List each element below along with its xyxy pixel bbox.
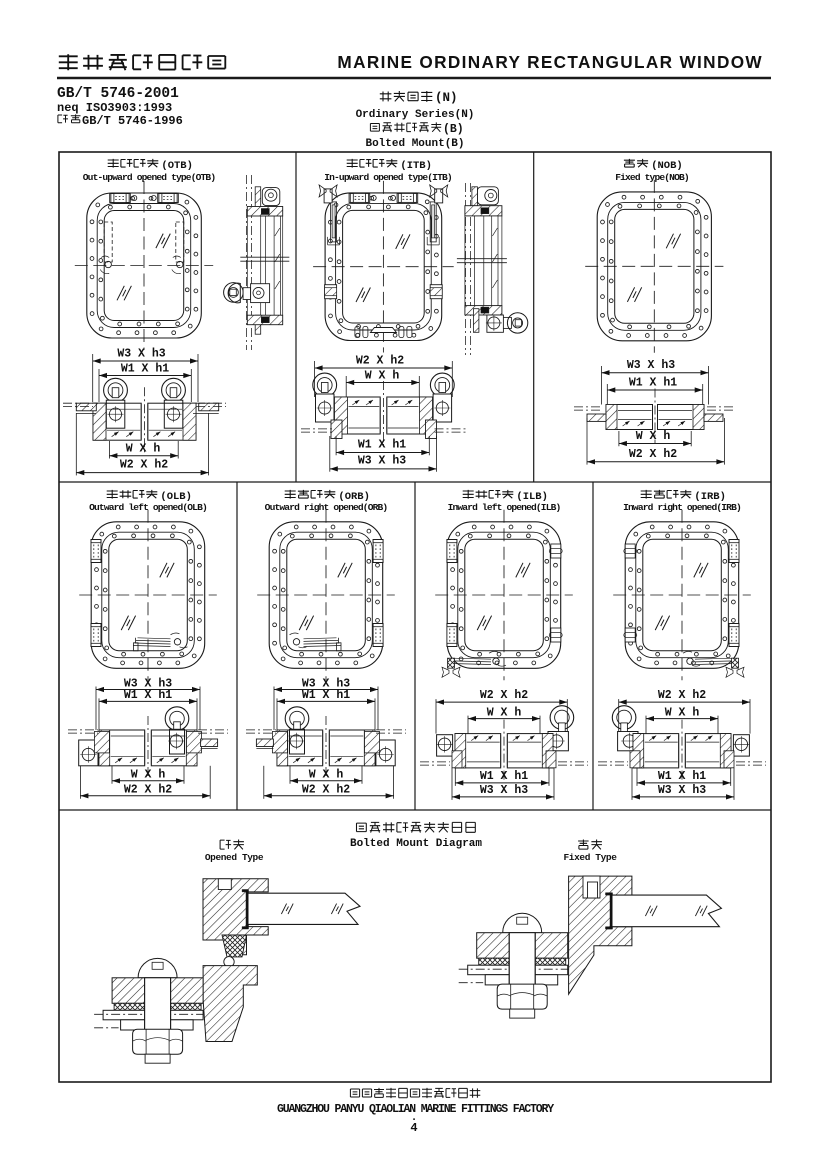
svg-text:Fixed Type: Fixed Type <box>563 852 617 863</box>
svg-text:(ITB): (ITB) <box>400 160 432 172</box>
svg-text:W1 X h1: W1 X h1 <box>124 689 172 702</box>
svg-text:W3 X h3: W3 X h3 <box>480 784 528 797</box>
svg-text:W2 X h2: W2 X h2 <box>356 355 404 368</box>
svg-text:(NOB): (NOB) <box>651 160 683 172</box>
svg-text:W2 X h2: W2 X h2 <box>302 783 350 796</box>
svg-text:MARINE ORDINARY RECTANGULAR WI: MARINE ORDINARY RECTANGULAR WINDOW <box>337 52 763 72</box>
svg-text:W1 X h1: W1 X h1 <box>302 689 350 702</box>
svg-text:Bolted Mount(B): Bolted Mount(B) <box>365 138 464 150</box>
svg-text:Ordinary Series(N): Ordinary Series(N) <box>356 109 475 121</box>
svg-text:4: 4 <box>410 1121 417 1135</box>
svg-text:W3 X h3: W3 X h3 <box>658 784 706 797</box>
svg-text:(N): (N) <box>435 91 458 105</box>
svg-text:neq ISO3903:1993: neq ISO3903:1993 <box>57 101 172 115</box>
svg-text:GB/T 5746-1996: GB/T 5746-1996 <box>82 114 183 128</box>
svg-text:W X h: W X h <box>665 706 700 719</box>
svg-text:GB/T 5746-2001: GB/T 5746-2001 <box>57 86 179 102</box>
svg-text:W X h: W X h <box>487 706 522 719</box>
svg-text:Bolted Mount Diagram: Bolted Mount Diagram <box>350 838 482 850</box>
svg-text:W X h: W X h <box>309 768 344 781</box>
svg-text:W1 X h1: W1 X h1 <box>121 363 169 376</box>
svg-text:W3 X h3: W3 X h3 <box>117 348 165 361</box>
svg-text:W2 X h2: W2 X h2 <box>480 689 528 702</box>
svg-text:W X h: W X h <box>365 370 400 383</box>
svg-text:Opened Type: Opened Type <box>205 852 264 863</box>
svg-text:W2 X h2: W2 X h2 <box>124 783 172 796</box>
svg-text:(B): (B) <box>443 123 464 136</box>
svg-text:W2 X h2: W2 X h2 <box>629 448 677 461</box>
svg-text:W1 X h1: W1 X h1 <box>629 377 677 390</box>
svg-text:W1 X h1: W1 X h1 <box>480 770 528 783</box>
svg-text:In-upward opened type(ITB): In-upward opened type(ITB) <box>324 172 452 183</box>
svg-text:W X h: W X h <box>126 443 161 456</box>
svg-text:(OTB): (OTB) <box>161 160 193 172</box>
svg-text:W X h: W X h <box>131 768 166 781</box>
svg-text:W2 X h2: W2 X h2 <box>120 459 168 472</box>
svg-text:W3 X h3: W3 X h3 <box>358 455 406 468</box>
svg-text:Out-upward opened type(OTB): Out-upward opened type(OTB) <box>83 172 216 183</box>
svg-text:Fixed type(NOB): Fixed type(NOB) <box>615 172 689 183</box>
svg-text:W1 X h1: W1 X h1 <box>358 439 406 452</box>
svg-text:W1 X h1: W1 X h1 <box>658 770 706 783</box>
svg-text:W X h: W X h <box>636 430 671 443</box>
svg-text:W3 X h3: W3 X h3 <box>627 359 675 372</box>
svg-text:W2 X h2: W2 X h2 <box>658 689 706 702</box>
